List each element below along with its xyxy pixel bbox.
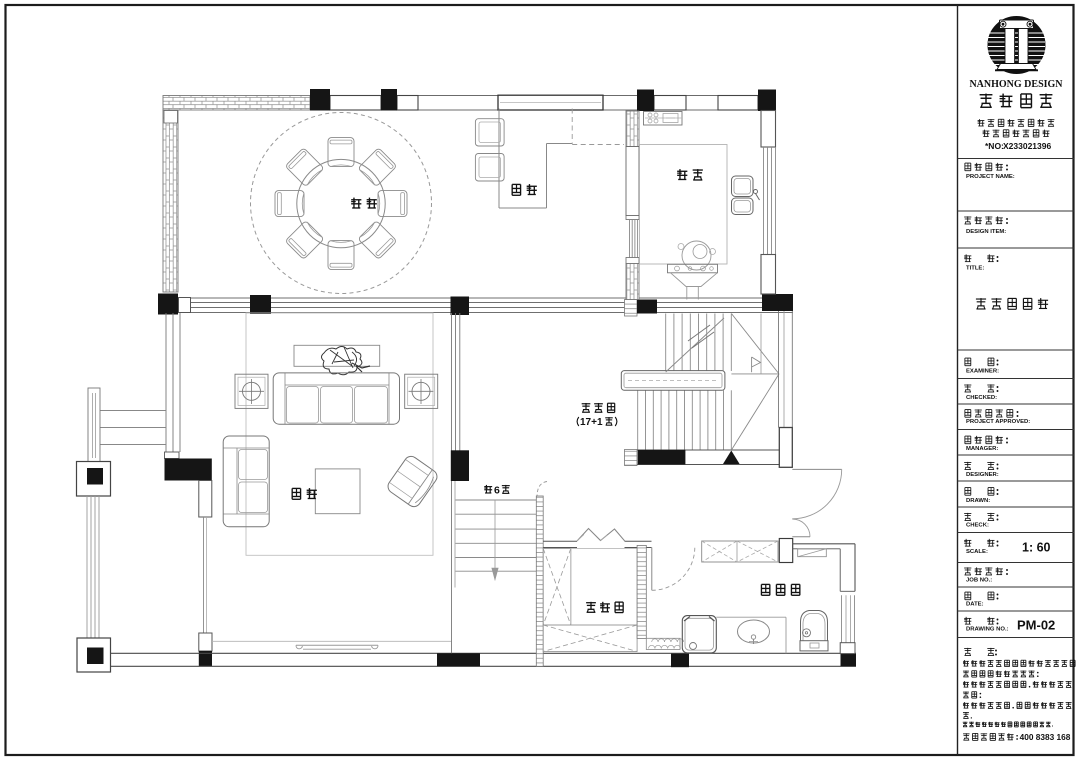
svg-text:DRAWING NO.:: DRAWING NO.: — [966, 627, 1009, 633]
svg-text:PM-02: PM-02 — [1017, 618, 1055, 633]
svg-text:JOB NO.:: JOB NO.: — [966, 578, 992, 584]
svg-text:.: . — [1052, 722, 1054, 729]
svg-text:400 8383 168: 400 8383 168 — [1020, 732, 1071, 742]
svg-text:DRAWN:: DRAWN: — [966, 498, 990, 504]
svg-text:TITLE:: TITLE: — [966, 266, 984, 272]
svg-text:.: . — [970, 711, 972, 720]
svg-text:MANAGER:: MANAGER: — [966, 446, 998, 452]
svg-text:6: 6 — [494, 484, 500, 496]
svg-text:PROJECT NAME:: PROJECT NAME: — [966, 174, 1015, 180]
svg-text:NANHONG DESIGN: NANHONG DESIGN — [969, 79, 1063, 90]
svg-text:DESIGNER:: DESIGNER: — [966, 472, 999, 478]
svg-text:*NO:: *NO: — [985, 141, 1004, 151]
svg-text:DESIGN ITEM:: DESIGN ITEM: — [966, 229, 1006, 235]
svg-text:1: 60: 1: 60 — [1022, 541, 1051, 555]
svg-text:PROJECT APPROVED:: PROJECT APPROVED: — [966, 419, 1030, 425]
svg-text:17+1: 17+1 — [580, 417, 603, 428]
svg-text:EXAMINER:: EXAMINER: — [966, 369, 999, 375]
svg-text:CHECK:: CHECK: — [966, 523, 989, 529]
svg-text:SCALE:: SCALE: — [966, 549, 988, 555]
svg-text:CHECKED:: CHECKED: — [966, 395, 997, 401]
svg-text:DATE:: DATE: — [966, 602, 984, 608]
svg-text:X233021396: X233021396 — [1003, 141, 1051, 151]
